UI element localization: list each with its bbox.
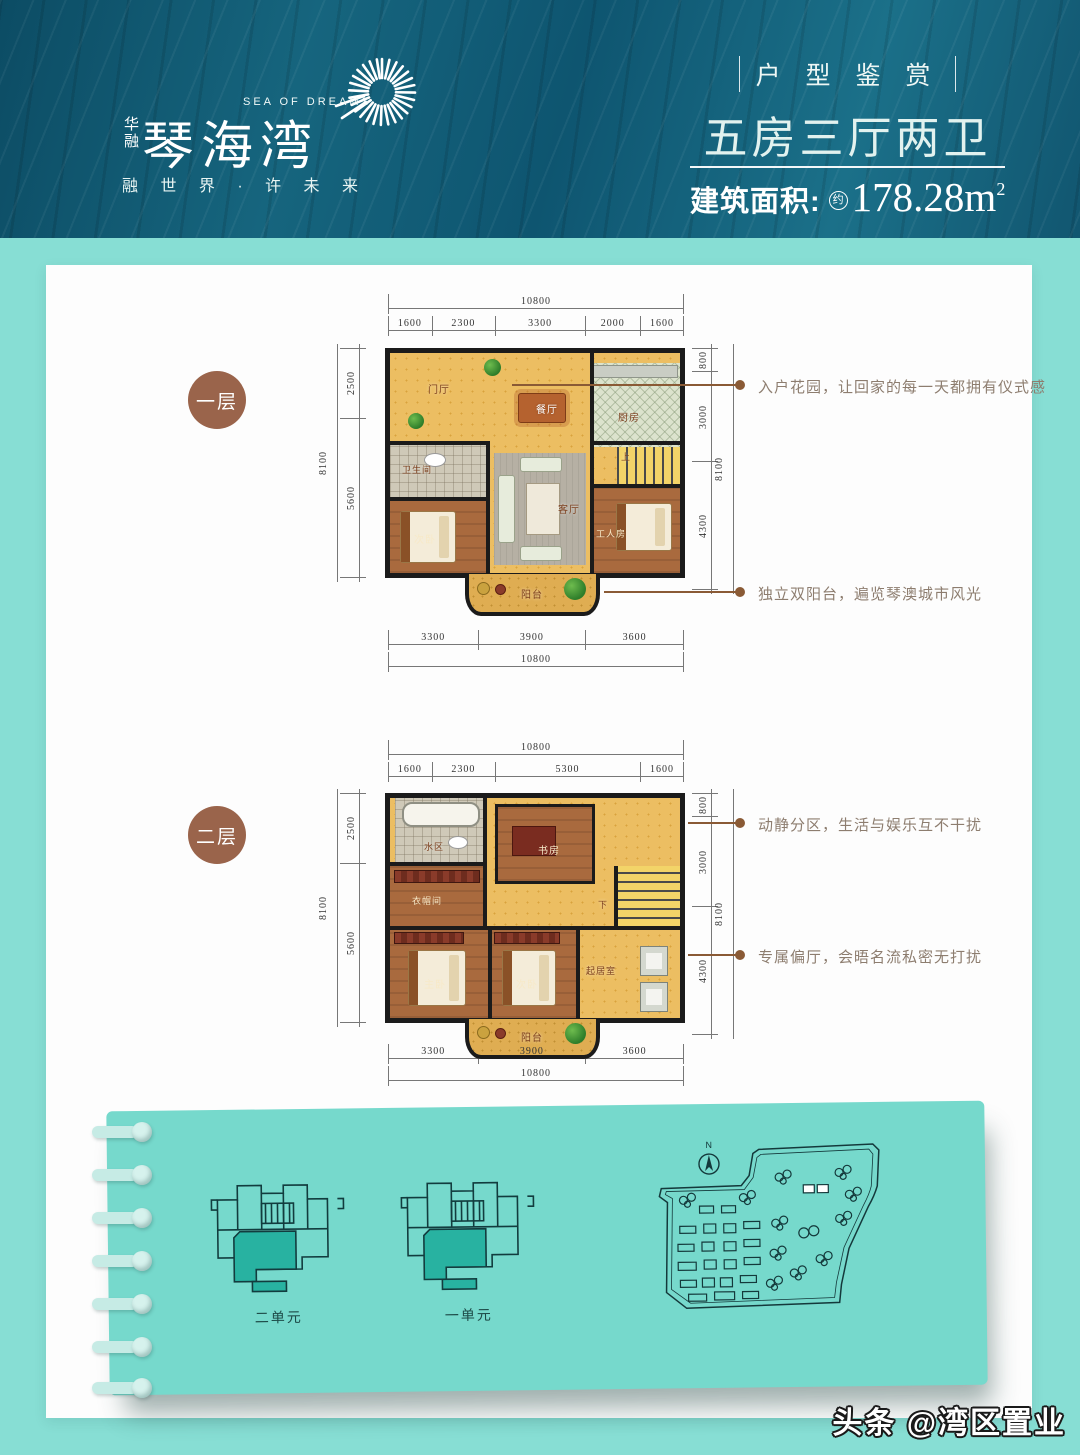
floor2-badge: 二层 xyxy=(188,806,246,864)
floor1-annotation1-line xyxy=(512,384,742,386)
balcony-pot xyxy=(495,584,506,595)
cloak-wardrobe xyxy=(394,870,480,883)
room-label-study: 书房 xyxy=(538,842,560,857)
balcony-pot xyxy=(495,1028,506,1039)
floor1-badge: 一层 xyxy=(188,371,246,429)
unit2-keyplan xyxy=(207,1164,349,1306)
floor2-annotation1-line xyxy=(688,822,742,824)
room-label-bedroom2: 次卧 xyxy=(516,976,538,991)
title-right-bar xyxy=(955,56,956,92)
area-label: 建筑面积: xyxy=(690,178,821,220)
floor1-annotation1-text: 入户花园，让回家的每一天都拥有仪式感 xyxy=(758,376,1046,397)
room-label-master: 主卧 xyxy=(424,976,446,991)
area-superscript: 2 xyxy=(996,179,1005,200)
plant xyxy=(408,413,424,429)
area-value: 178.28m xyxy=(852,173,997,221)
unit-type-title: 五房三厅两卫 xyxy=(690,102,1005,166)
coffee-table xyxy=(526,483,560,535)
floor1-annotation2-text: 独立双阳台，遍览琴澳城市风光 xyxy=(758,583,982,604)
site-plan: N xyxy=(643,1132,910,1343)
header-banner: SEA OF DREAMS 华融 琴海湾 融 世 界 · 许 未 来 户 型 鉴… xyxy=(0,0,1080,238)
plant xyxy=(484,359,501,376)
unit1-label: 一单元 xyxy=(419,1304,519,1325)
wet-basin xyxy=(448,836,468,849)
stairs-zone xyxy=(618,866,680,928)
bedroom2-wardrobe xyxy=(494,932,560,944)
floor2-dims-bottom: 3300 3900 3600 10800 xyxy=(388,1040,684,1084)
floor2-annotation2-text: 专属偏厅，会晤名流私密无打扰 xyxy=(758,946,982,967)
sofa xyxy=(498,475,515,543)
svg-text:N: N xyxy=(705,1140,712,1150)
binder-peg xyxy=(92,1294,154,1314)
binder-peg xyxy=(92,1208,154,1228)
balcony-pot xyxy=(477,1026,490,1039)
kitchen-counter xyxy=(592,365,678,378)
binder-peg xyxy=(92,1378,154,1398)
approx-circle: 约 xyxy=(829,191,848,210)
floor2-dims-top: 10800 1600 2300 5300 1600 xyxy=(388,736,684,780)
sofa xyxy=(520,546,562,561)
floor1-plan: 门厅 餐厅 厨房 卫生间 次卧 客厅 工人房 上 xyxy=(385,348,685,578)
room-label-sitting: 起居室 xyxy=(586,964,616,977)
room-label-wet-area: 水区 xyxy=(424,840,444,853)
poster-page: SEA OF DREAMS 华融 琴海湾 融 世 界 · 许 未 来 户 型 鉴… xyxy=(0,0,1080,1455)
room-label-living: 客厅 xyxy=(558,501,580,516)
room-label-balcony: 阳台 xyxy=(521,1029,543,1044)
watermark: 头条 @湾区置业 xyxy=(832,1398,1066,1442)
sofa xyxy=(520,457,562,472)
balcony-tree xyxy=(565,1023,586,1044)
section-title: 户 型 鉴 赏 xyxy=(690,56,1005,92)
area-row: 建筑面积: 约 178.28m 2 xyxy=(690,173,1020,221)
binder-peg xyxy=(92,1165,154,1185)
binder-peg xyxy=(92,1337,154,1357)
bathtub xyxy=(402,802,480,827)
floor1-dims-top: 10800 1600 2300 3300 2000 1600 xyxy=(388,290,684,334)
sitting-fixture xyxy=(640,982,668,1012)
floor1-dims-bottom: 3300 3900 3600 10800 xyxy=(388,626,684,670)
floor1-balcony: 阳台 xyxy=(465,574,600,616)
floor1-annotation2-line xyxy=(604,591,742,593)
brand-company: 华融 xyxy=(120,116,141,150)
title-left-bar xyxy=(739,56,740,92)
room-label-bath: 卫生间 xyxy=(402,463,432,476)
balcony-pot xyxy=(477,582,490,595)
room-label-maid: 工人房 xyxy=(596,527,626,540)
floor2-plan: 水区 书房 衣帽间 主卧 次卧 起居室 下 xyxy=(385,793,685,1023)
binder-peg xyxy=(92,1122,154,1142)
floor2-dims-left: 8100 2500 5600 xyxy=(318,793,362,1023)
brand-name: 琴海湾 xyxy=(142,104,319,179)
floor2-annotation2-line xyxy=(688,954,742,956)
master-wardrobe xyxy=(394,932,464,944)
room-label-balcony: 阳台 xyxy=(521,586,543,601)
room-label-stairs-up: 上 xyxy=(621,450,631,463)
floor1-dims-left: 8100 2500 5600 xyxy=(318,348,362,578)
floor2-annotation1-text: 动静分区，生活与娱乐互不干扰 xyxy=(758,814,982,835)
room-label-cloakroom: 衣帽间 xyxy=(412,894,442,907)
brand-tagline: 融 世 界 · 许 未 来 xyxy=(122,172,367,196)
room-label-stairs-down: 下 xyxy=(598,898,608,911)
north-compass-icon: N xyxy=(699,1140,719,1174)
sitting-fixture xyxy=(640,946,668,976)
area-divider xyxy=(690,166,1005,168)
unit1-keyplan xyxy=(397,1162,539,1304)
balcony-tree xyxy=(564,578,586,600)
shell-logo-icon xyxy=(322,46,434,142)
room-label-dining: 餐厅 xyxy=(536,401,558,416)
room-label-kitchen: 厨房 xyxy=(618,409,640,424)
floor2-dims-right: 800 3000 4300 8100 xyxy=(692,793,736,1035)
binder-peg xyxy=(92,1251,154,1271)
section-title-text: 户 型 鉴 赏 xyxy=(756,56,940,92)
unit2-label: 二单元 xyxy=(229,1307,329,1328)
room-label-entry: 门厅 xyxy=(428,381,450,396)
room-label-bedroom2: 次卧 xyxy=(414,531,436,546)
key-plan-panel: 二单元 一单元 xyxy=(106,1101,987,1396)
